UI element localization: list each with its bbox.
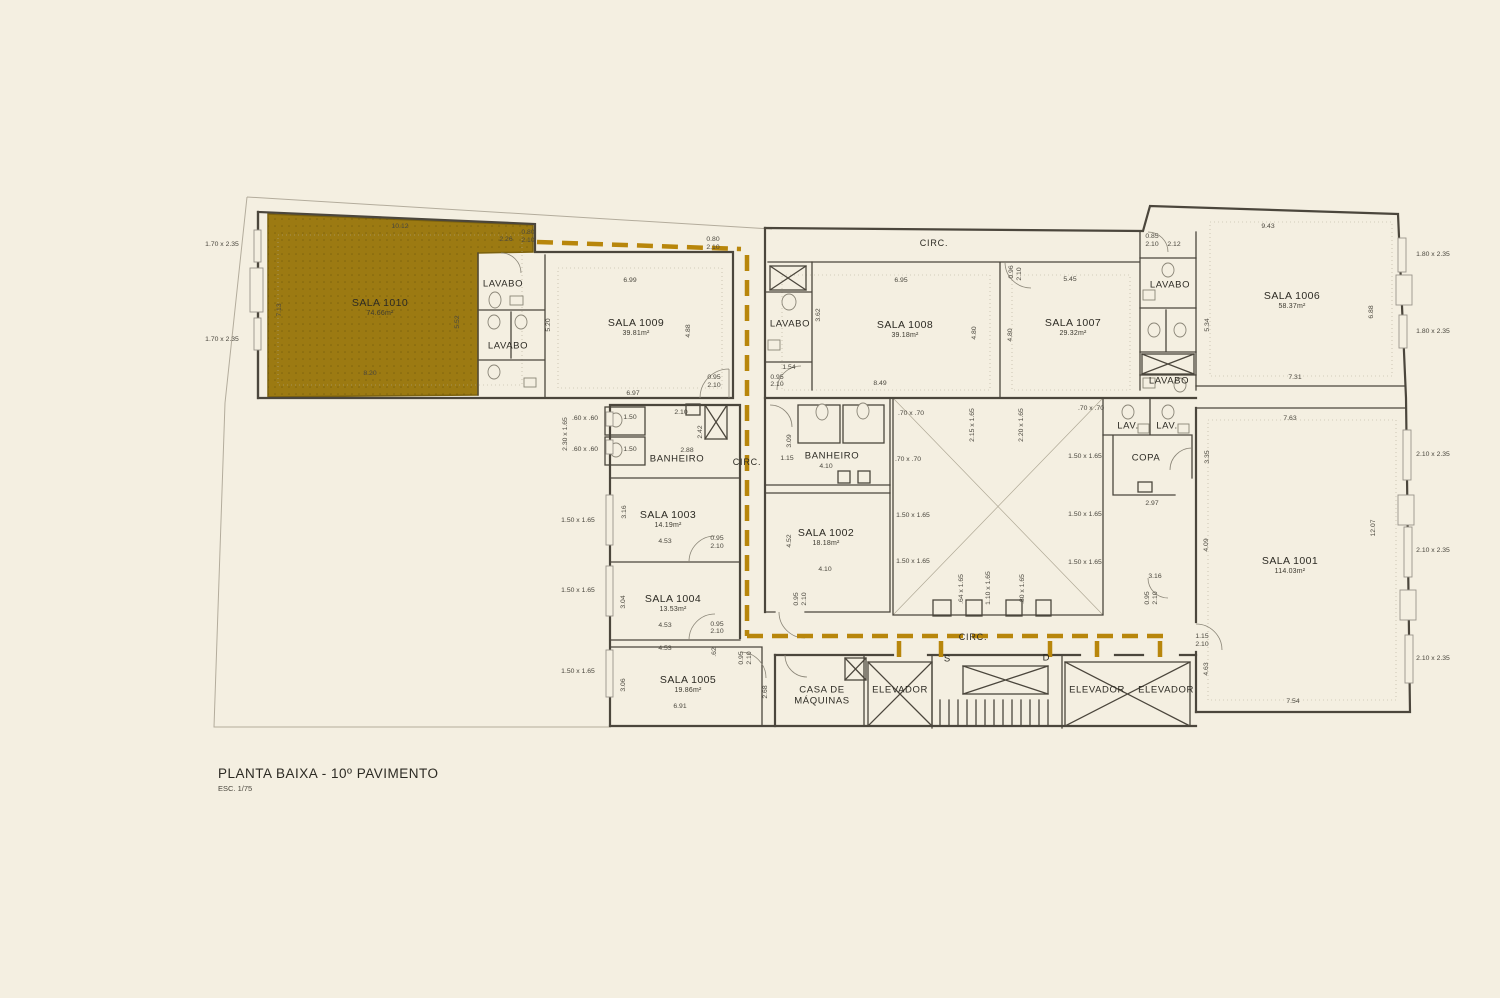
title-block: PLANTA BAIXA - 10º PAVIMENTO ESC. 1/75 [218,766,439,793]
shaft-cross [893,398,1103,615]
floor-plan-drawing [0,0,1500,998]
drawing-title: PLANTA BAIXA - 10º PAVIMENTO [218,766,439,781]
drawing-scale: ESC. 1/75 [218,784,439,793]
floor-plan: SALA 101074.66m²SALA 100939.81m²SALA 100… [0,0,1500,998]
fixtures [488,263,1189,457]
circulation-path [537,242,1163,666]
